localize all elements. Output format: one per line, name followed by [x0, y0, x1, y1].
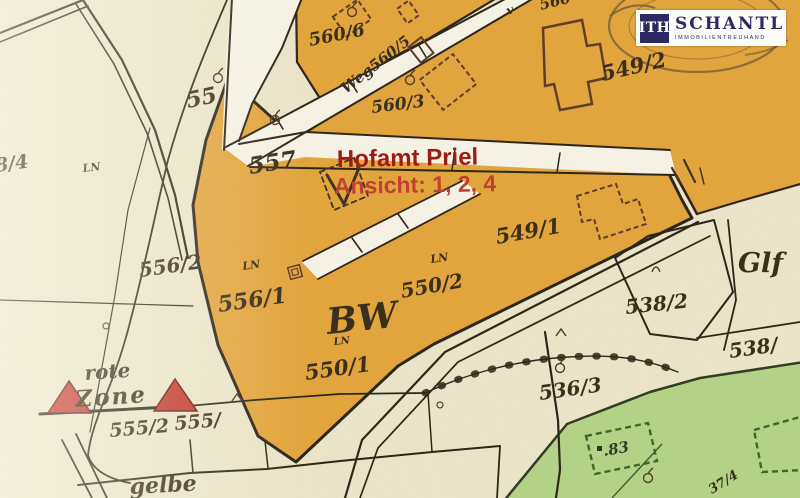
brand-logo: ITH SCHANTL IMMOBILIENTREUHAND	[636, 10, 786, 46]
map-screenshot: 558/4LN557560/6Weg560/5560/3560v549/2549…	[0, 0, 800, 498]
logo-monogram-icon: ITH	[640, 14, 669, 43]
logo-monogram-text: ITH	[639, 20, 671, 36]
logo-company-subtitle: IMMOBILIENTREUHAND	[675, 35, 782, 41]
logo-text: SCHANTL IMMOBILIENTREUHAND	[675, 16, 782, 41]
light-gradient	[0, 0, 800, 498]
cadastral-map: 558/4LN557560/6Weg560/5560/3560v549/2549…	[0, 0, 800, 498]
logo-company-name: SCHANTL	[675, 16, 782, 33]
